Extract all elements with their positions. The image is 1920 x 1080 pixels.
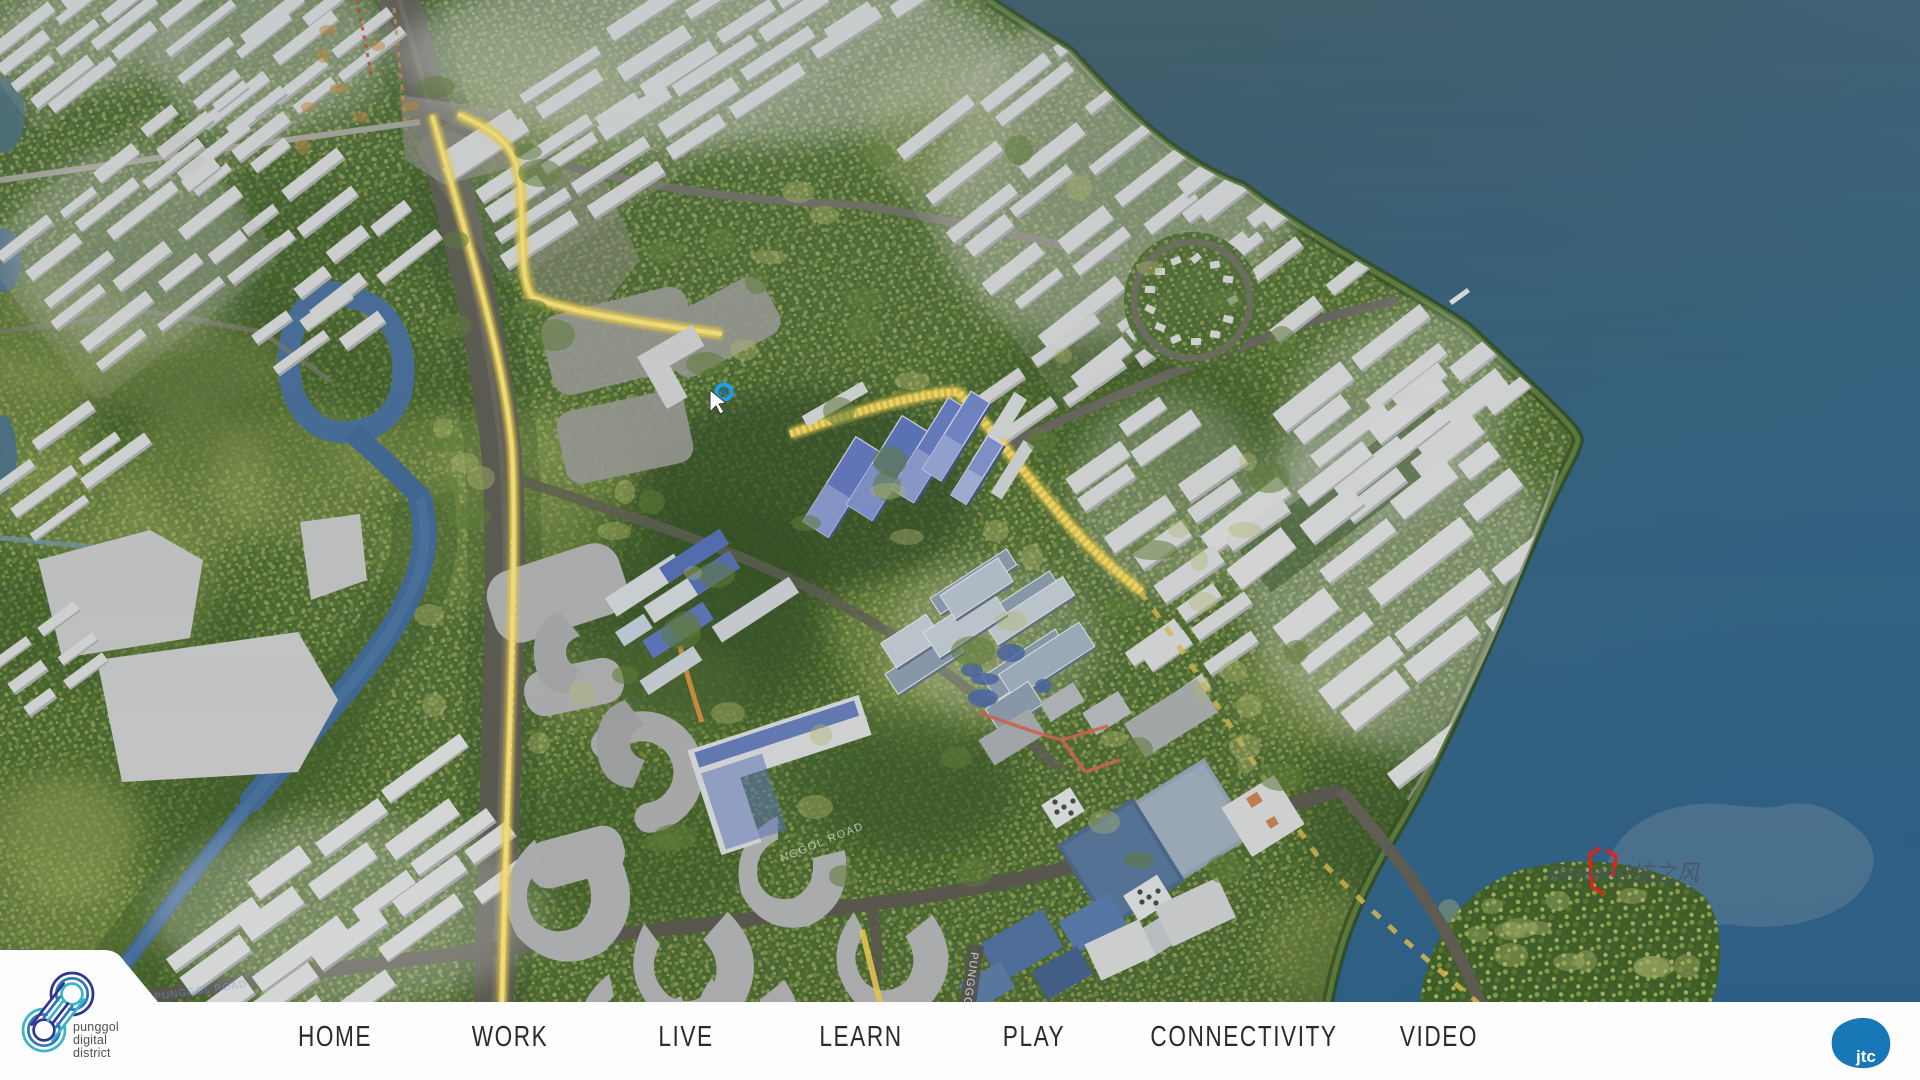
svg-text:showind炫之风: showind炫之风 bbox=[1546, 860, 1700, 886]
svg-text:jtc: jtc bbox=[1855, 1047, 1876, 1066]
